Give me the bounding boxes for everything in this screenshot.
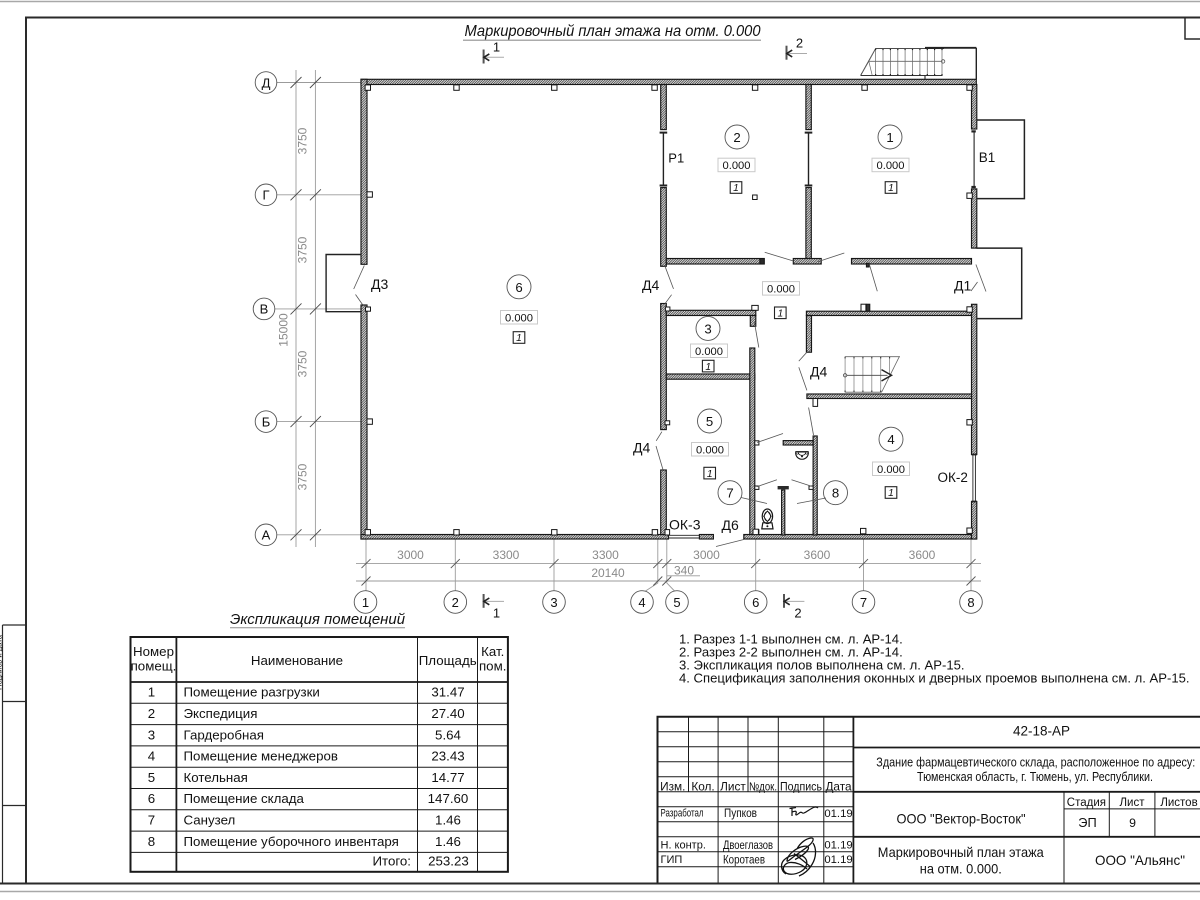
svg-text:ООО "Альянс": ООО "Альянс" [1095,852,1185,868]
svg-text:Р1: Р1 [668,151,684,166]
svg-text:6: 6 [752,595,759,610]
svg-text:1: 1 [707,469,713,480]
svg-text:42-18-АР: 42-18-АР [1013,724,1070,739]
svg-text:0.000: 0.000 [877,464,905,476]
svg-text:Д1: Д1 [954,278,971,294]
svg-text:В1: В1 [979,150,996,165]
svg-text:3750: 3750 [296,350,310,377]
svg-text:ОК-2: ОК-2 [938,470,968,485]
svg-text:1: 1 [777,309,783,320]
svg-text:Двоеглазов: Двоеглазов [723,838,773,852]
svg-text:Подпись и дата: Подпись и дата [0,635,4,690]
svg-text:Н. контр.: Н. контр. [661,840,706,852]
svg-text:Лист: Лист [720,779,746,793]
svg-text:Помещение менеджеров: Помещение менеджеров [184,749,338,764]
svg-text:Помещение разгрузки: Помещение разгрузки [184,685,320,700]
svg-text:Листов: Листов [1160,797,1197,809]
svg-text:6: 6 [515,280,522,295]
svg-text:Пупков: Пупков [724,806,757,820]
svg-text:Кат.: Кат. [481,644,504,659]
svg-text:помещ.: помещ. [131,659,177,674]
svg-text:Номер: Номер [133,644,174,659]
svg-text:Г: Г [262,188,269,203]
svg-text:2: 2 [148,706,155,721]
svg-text:Д4: Д4 [633,440,650,456]
svg-text:Здание фармацевтического склад: Здание фармацевтического склада, располо… [876,754,1195,769]
svg-text:0.000: 0.000 [767,283,795,295]
svg-text:Д6: Д6 [722,517,739,533]
svg-text:7: 7 [860,595,867,610]
svg-text:2: 2 [796,36,803,51]
svg-text:Итого:: Итого: [372,854,411,869]
svg-text:Помещение склада: Помещение склада [184,791,305,806]
svg-text:27.40: 27.40 [431,706,464,721]
svg-text:Площадь: Площадь [419,653,477,668]
svg-text:3: 3 [704,321,711,336]
svg-text:8: 8 [832,486,839,501]
svg-text:2: 2 [452,595,459,610]
svg-text:Котельная: Котельная [184,770,248,785]
svg-text:2: 2 [733,130,740,145]
svg-text:Д3: Д3 [371,276,388,292]
svg-text:31.47: 31.47 [431,685,464,700]
svg-text:1.46: 1.46 [435,813,461,828]
svg-text:4: 4 [148,749,155,764]
svg-text:6: 6 [148,791,155,806]
svg-text:Стадия: Стадия [1067,797,1106,809]
svg-text:А: А [262,528,271,543]
svg-text:9: 9 [1129,816,1136,830]
svg-text:5: 5 [148,770,155,785]
svg-text:23.43: 23.43 [431,749,464,764]
svg-text:1: 1 [493,39,500,54]
svg-text:14.77: 14.77 [431,770,464,785]
svg-text:5: 5 [673,595,680,610]
svg-text:Разработал: Разработал [661,808,704,820]
svg-text:3750: 3750 [296,127,310,154]
svg-text:Лист: Лист [1120,797,1146,809]
svg-text:340: 340 [674,564,694,578]
svg-text:Наименование: Наименование [251,653,343,668]
svg-text:1: 1 [148,685,155,700]
svg-text:ОК-3: ОК-3 [669,517,701,533]
svg-text:8: 8 [967,595,974,610]
svg-text:7: 7 [726,486,733,501]
svg-text:0.000: 0.000 [505,313,533,325]
svg-text:Д: Д [262,75,271,90]
svg-text:147.60: 147.60 [428,791,469,806]
svg-text:В: В [260,302,269,317]
svg-text:Д4: Д4 [810,364,827,380]
svg-text:253.23: 253.23 [428,854,469,869]
svg-text:Дата: Дата [825,779,852,793]
svg-text:4. Спецификация заполнения око: 4. Спецификация заполнения оконных и две… [679,670,1190,685]
svg-text:Кол.: Кол. [691,779,714,793]
svg-text:3750: 3750 [296,236,310,263]
svg-text:8: 8 [148,834,155,849]
svg-text:1: 1 [516,333,522,344]
svg-text:1: 1 [362,595,369,610]
svg-text:5.64: 5.64 [435,727,461,742]
svg-text:3300: 3300 [592,548,619,562]
svg-text:3300: 3300 [493,548,520,562]
svg-text:Экспедиция: Экспедиция [184,706,258,721]
svg-text:1.46: 1.46 [435,834,461,849]
svg-text:Помещение уборочного инвентаря: Помещение уборочного инвентаря [184,834,399,849]
svg-text:Подпись: Подпись [780,779,822,793]
svg-text:3600: 3600 [804,548,831,562]
svg-text:01.19: 01.19 [824,854,852,866]
svg-text:3750: 3750 [296,463,310,490]
svg-text:Маркировочный план этажа на от: Маркировочный план этажа на отм. 0.000 [465,23,761,40]
svg-text:Гардеробная: Гардеробная [184,727,264,742]
svg-text:1: 1 [705,362,711,373]
svg-text:Б: Б [262,414,271,429]
svg-text:4: 4 [887,432,894,447]
svg-text:7: 7 [148,813,155,828]
svg-text:1: 1 [886,130,893,145]
svg-text:1: 1 [493,606,500,621]
svg-text:на отм. 0.000.: на отм. 0.000. [920,860,1002,876]
svg-text:5: 5 [706,414,713,429]
svg-text:2: 2 [794,606,801,621]
svg-text:3000: 3000 [693,548,720,562]
svg-text:0.000: 0.000 [696,445,724,457]
svg-text:15000: 15000 [277,313,291,347]
svg-text:0.000: 0.000 [723,160,751,172]
svg-text:Маркировочный план этажа: Маркировочный план этажа [878,844,1044,860]
svg-text:№док.: №док. [749,779,777,793]
svg-text:Изм.: Изм. [660,779,685,793]
svg-text:3: 3 [148,727,155,742]
svg-text:ООО "Вектор-Восток": ООО "Вектор-Восток" [897,811,1026,827]
svg-text:ГИП: ГИП [661,854,683,866]
svg-text:01.19: 01.19 [824,840,852,852]
svg-text:3: 3 [550,595,557,610]
svg-text:3000: 3000 [397,548,424,562]
svg-text:1: 1 [888,488,894,499]
svg-text:Д4: Д4 [642,277,659,293]
svg-text:ЭП: ЭП [1078,815,1096,830]
svg-text:01.19: 01.19 [824,808,852,820]
svg-text:Коротаев: Коротаев [723,853,765,867]
svg-text:0.000: 0.000 [695,346,723,358]
svg-text:4: 4 [638,595,645,610]
svg-text:1: 1 [733,183,739,194]
svg-text:пом.: пом. [479,659,506,674]
svg-text:1: 1 [888,183,894,194]
svg-text:Санузел: Санузел [184,813,236,828]
svg-text:Экспликация помещений: Экспликация помещений [230,611,406,628]
svg-text:0.000: 0.000 [877,160,905,172]
svg-text:Тюменская область, г. Тюмень,: Тюменская область, г. Тюмень, ул. Респуб… [917,769,1153,784]
svg-text:3600: 3600 [909,548,936,562]
svg-text:20140: 20140 [591,566,625,580]
